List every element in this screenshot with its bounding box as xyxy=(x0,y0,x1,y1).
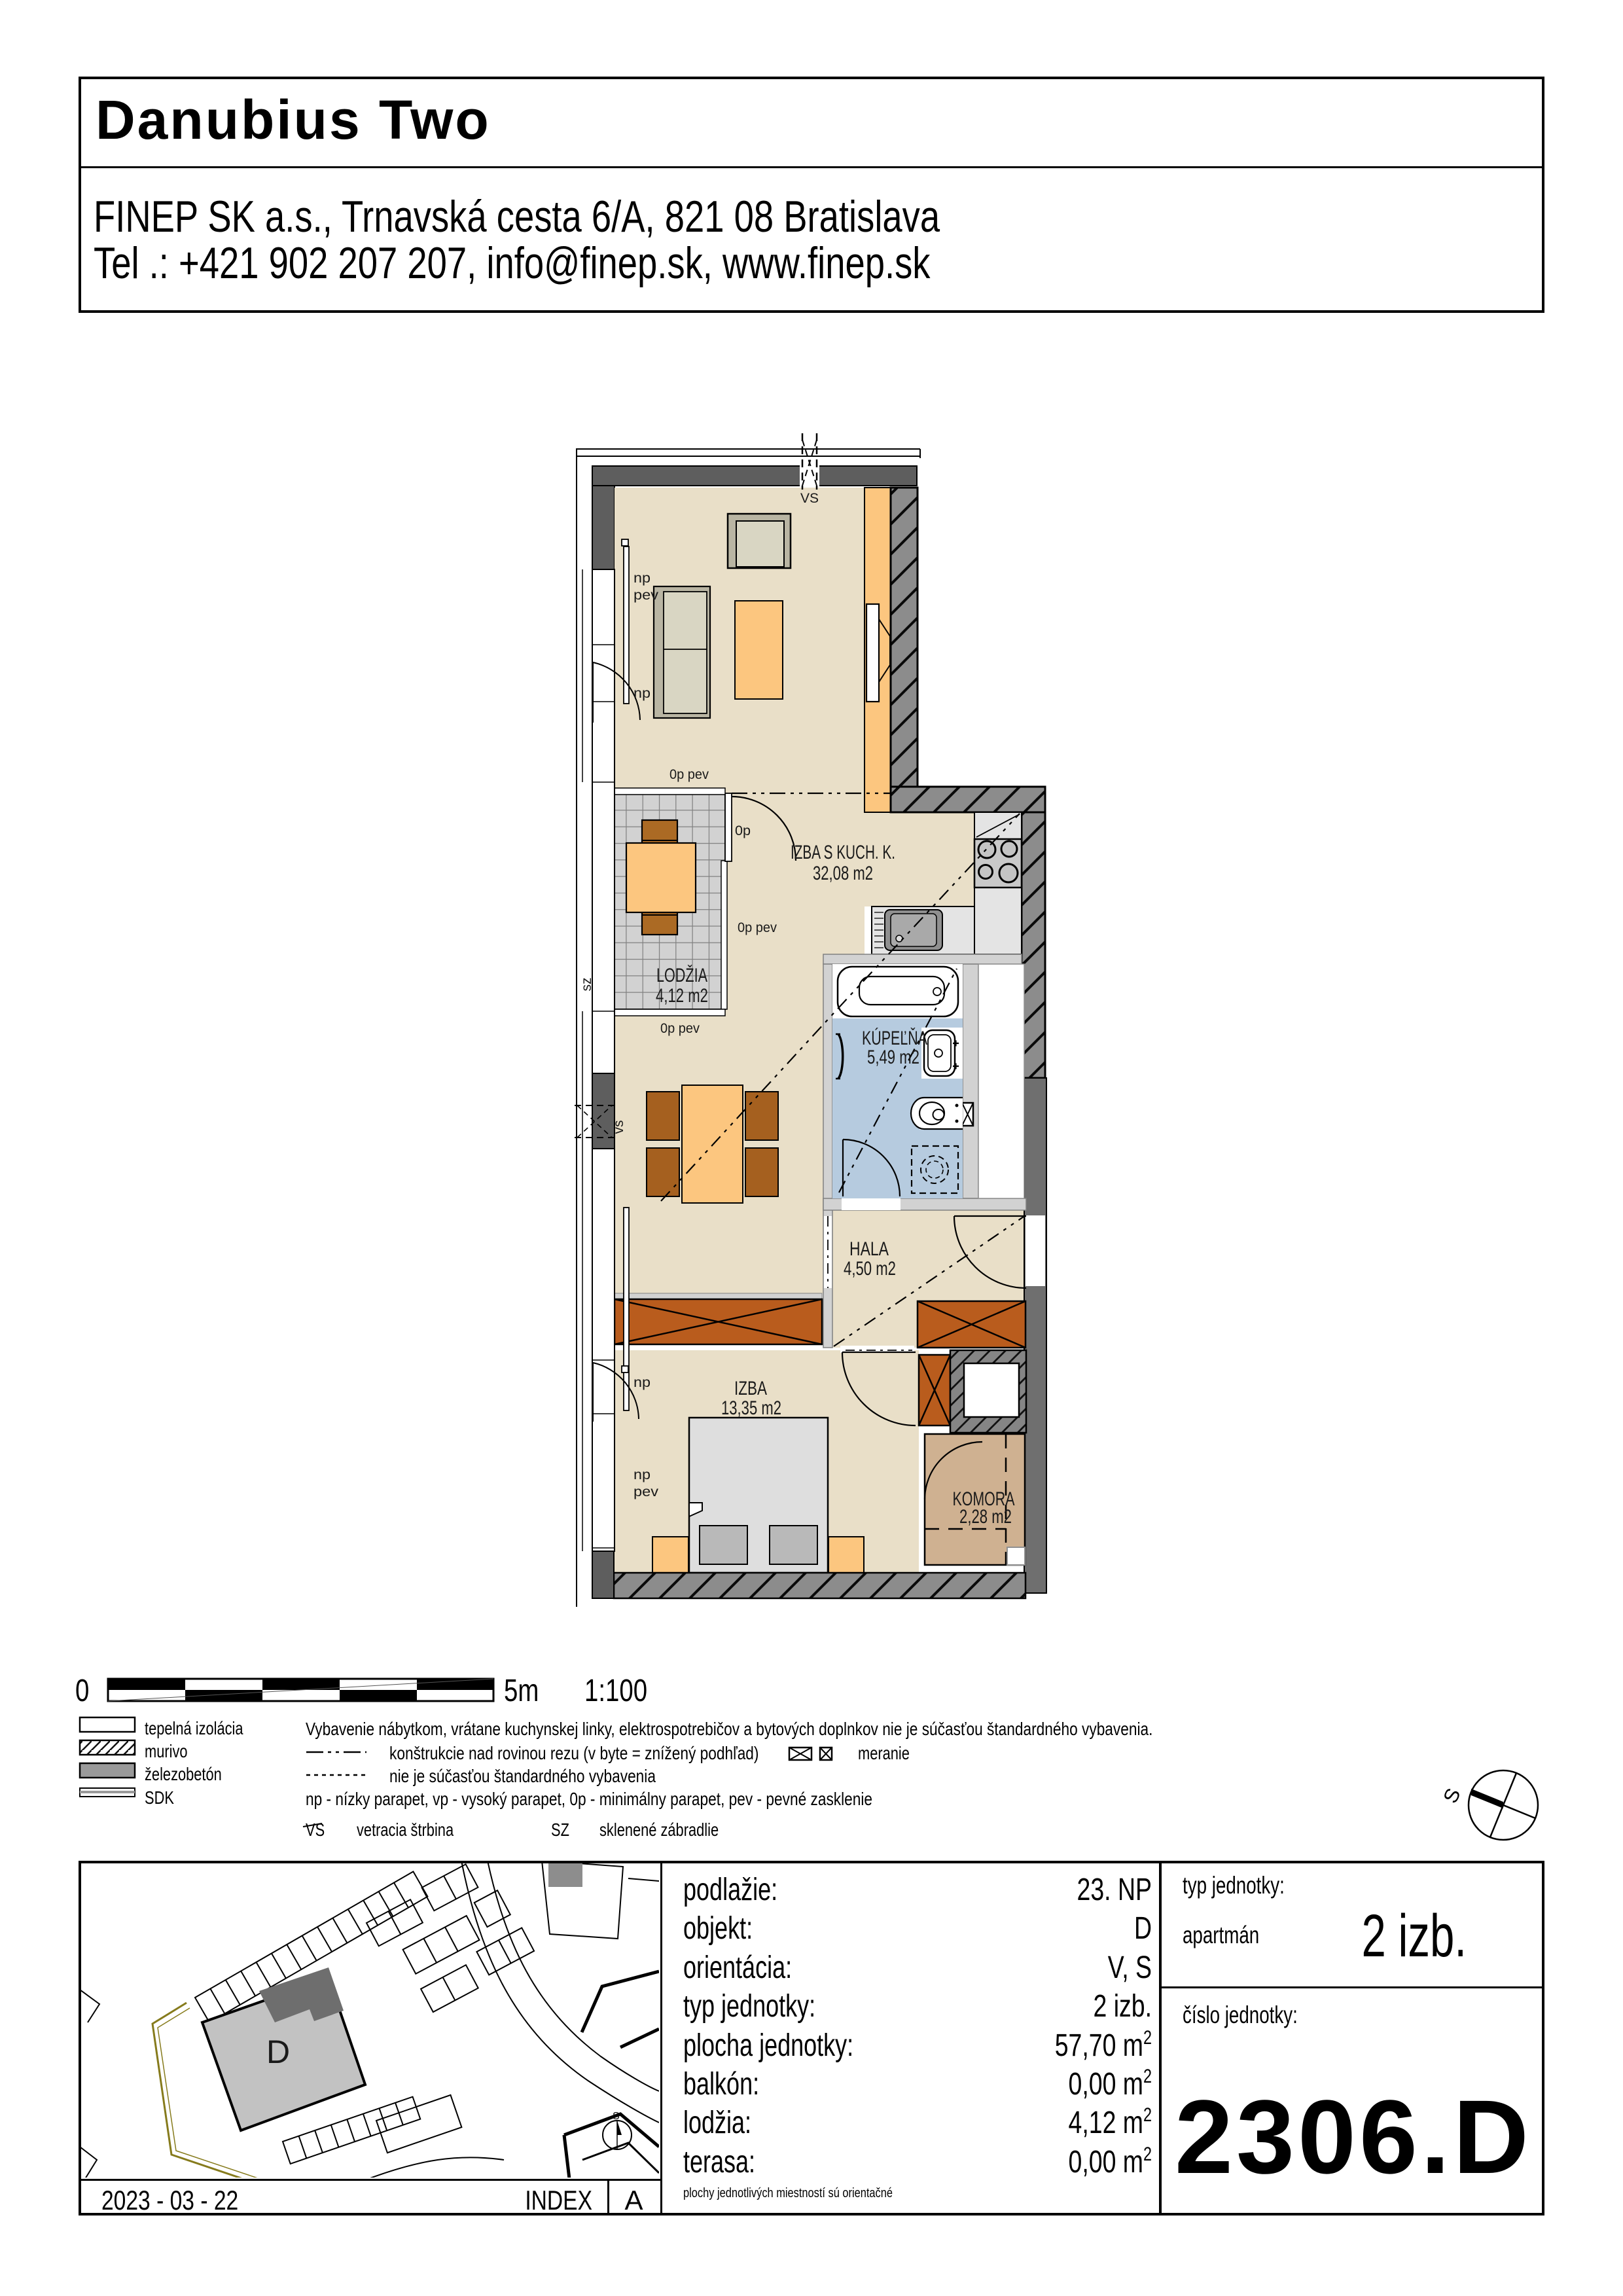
svg-text:4,50 m2: 4,50 m2 xyxy=(844,1258,896,1280)
svg-text:0p: 0p xyxy=(735,823,751,838)
svg-text:4,12 m2: 4,12 m2 xyxy=(656,985,708,1007)
svg-text:np: np xyxy=(633,686,651,701)
svg-text:13,35 m2: 13,35 m2 xyxy=(721,1397,781,1419)
svg-text:IZBA: IZBA xyxy=(734,1378,767,1399)
svg-text:vs: vs xyxy=(611,1121,626,1134)
svg-text:HALA: HALA xyxy=(849,1238,889,1260)
svg-text:VS: VS xyxy=(800,491,819,506)
svg-text:pev: pev xyxy=(633,588,659,603)
svg-text:sz: sz xyxy=(579,978,594,992)
svg-text:2,28 m2: 2,28 m2 xyxy=(959,1506,1012,1528)
svg-text:np: np xyxy=(633,571,651,586)
svg-text:pev: pev xyxy=(633,1484,659,1499)
svg-text:0p pev: 0p pev xyxy=(660,1021,700,1036)
svg-text:0p pev: 0p pev xyxy=(738,920,777,935)
svg-text:np: np xyxy=(633,1467,651,1482)
svg-text:IZBA S KUCH. K.: IZBA S KUCH. K. xyxy=(791,842,895,863)
svg-text:5,49 m2: 5,49 m2 xyxy=(867,1047,919,1068)
svg-text:32,08 m2: 32,08 m2 xyxy=(813,863,873,884)
svg-text:S: S xyxy=(1438,1785,1465,1807)
svg-text:0p pev: 0p pev xyxy=(669,767,709,782)
svg-text:np: np xyxy=(633,1375,651,1390)
svg-text:LODŽIA: LODŽIA xyxy=(656,965,707,986)
